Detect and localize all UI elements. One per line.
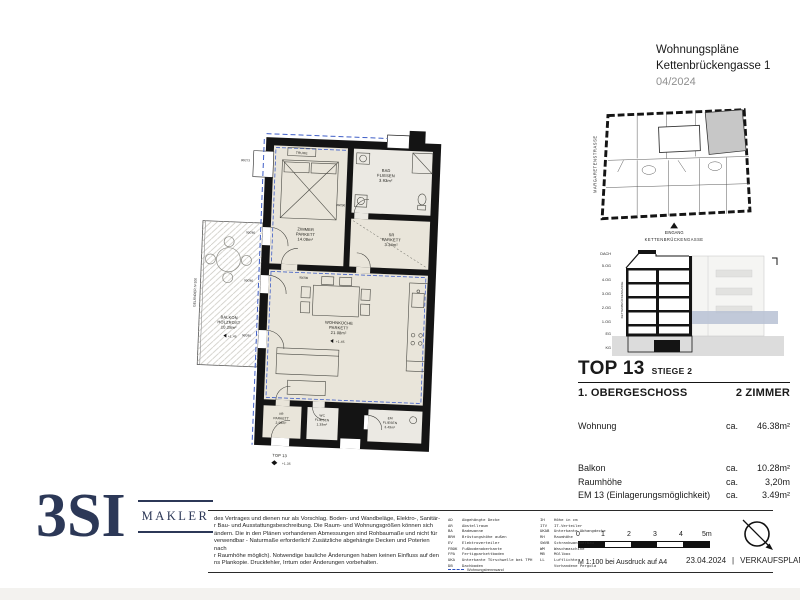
detail-row-raumhoehe: Raumhöhe ca. 3,20m: [578, 476, 790, 490]
entrance-level-value: +1.35: [282, 462, 291, 466]
floorplan-drawing: GELÄNDER h=100 BALKON HOLZROST 10.28m² +…: [185, 118, 475, 478]
section-floor-labels: DACH 5.OG 4.OG 3.OG 2.OG 1.OG EG KG: [600, 252, 611, 350]
page-edge-shadow: [0, 588, 800, 600]
room-zimmer-area: 14.08m²: [297, 236, 313, 242]
doc-title: Wohnungspläne: [656, 42, 770, 58]
entrance-top-label: TOP 13: [272, 453, 287, 459]
floor-label: 1.OG: [602, 320, 611, 324]
plan-page: Wohnungspläne Kettenbrückengasse 1 04/20…: [0, 0, 800, 600]
top-window-notch: [387, 135, 410, 149]
truhe-label: TRUHE: [296, 151, 308, 155]
entrance-marker: TOP 13 +1.35: [271, 453, 291, 466]
floor-label: DACH: [600, 252, 611, 256]
detail-ca: ca.: [726, 476, 752, 490]
balcony-level-value: +1.45: [228, 334, 237, 338]
logo-makler-text: MAKLER: [138, 500, 214, 533]
doc-address: Kettenbrückengasse 1: [656, 58, 770, 74]
detail-ca: ca.: [726, 462, 752, 476]
detail-label: EM 13 (Einlagerungsmöglichkeit): [578, 489, 726, 503]
railing-label: GELÄNDER h=100: [193, 278, 198, 307]
unit-rooms: 2 ZIMMER: [736, 387, 790, 399]
unit-stiege: STIEGE 2: [652, 366, 693, 376]
scale-tick: 2: [627, 531, 631, 538]
unit-number: TOP 13: [578, 358, 645, 380]
highlight-1og-band: [692, 311, 778, 324]
dim-label: 80/200: [336, 203, 345, 207]
dim-label: 90/200: [299, 276, 308, 280]
highlighted-unit: [705, 110, 746, 155]
scale-tick: 3: [653, 531, 657, 538]
scale-tick: 4: [679, 531, 683, 538]
dim-label: 90/260: [244, 278, 253, 282]
entrance-level-diamond: [271, 460, 277, 465]
ground: [612, 336, 784, 356]
footer-rule-bottom: [208, 572, 773, 573]
legend-column-1: AD Abgehängte Decke AR Abstellraum BA Ba…: [448, 517, 532, 568]
wohnung-row: Wohnung ca. 46.38m²: [578, 421, 790, 431]
wk-level-value: +1.45: [336, 340, 345, 344]
siteplan-street-left: MARGARETENSTRASSE: [592, 135, 597, 193]
floor-label: 4.OG: [602, 278, 611, 282]
dim-label: 80/273: [241, 158, 250, 162]
north-arrow-icon: [738, 516, 780, 558]
floor-label: EG: [606, 332, 612, 336]
plan-date: 23.04.2024: [686, 556, 726, 565]
detail-value: 3,20m: [752, 476, 790, 490]
room-bad-area: 3.93m²: [379, 178, 393, 184]
dim-label: 90/260: [242, 333, 251, 337]
footer-rule-top: [208, 510, 773, 511]
room-em-area: 3.49m²: [384, 425, 395, 429]
detail-label: Balkon: [578, 462, 726, 476]
detail-label: Raumhöhe: [578, 476, 726, 490]
siteplan-drawing: MARGARETENSTRASSE EINGANG KETTENBRÜCKENG…: [590, 100, 766, 242]
floor-label: 3.OG: [602, 292, 611, 296]
wohnung-label: Wohnung: [578, 421, 726, 431]
section-street-label: KETTENBRÜCKENGASSE: [620, 282, 624, 319]
detail-value: 3.49m²: [752, 489, 790, 503]
separator: |: [732, 556, 734, 565]
room-vr-area: 2.56m²: [275, 421, 286, 425]
room-balkon-area: 10.28m²: [221, 324, 237, 330]
blue-dash-symbol: [448, 569, 464, 570]
floor-label: 2.OG: [602, 306, 611, 310]
company-logo: 3SI MAKLER: [36, 488, 213, 545]
disclaimer-text: des Vertrages und dienen nur als Vorschl…: [214, 516, 440, 568]
siteplan-entrance-label: EINGANG: [665, 230, 684, 235]
siteplan-street-bottom: KETTENBRÜCKENGASSE: [645, 237, 704, 242]
room-wk-area: 21.08m²: [331, 330, 347, 336]
detail-row-balkon: Balkon ca. 10.28m²: [578, 462, 790, 476]
scale-tick: 5m: [702, 531, 712, 538]
unit-floor: 1. OBERGESCHOSS: [578, 387, 687, 399]
unit-floor-row: 1. OBERGESCHOSS 2 ZIMMER: [578, 387, 790, 399]
room-wc-area: 1.39m²: [316, 422, 327, 426]
document-header: Wohnungspläne Kettenbrückengasse 1 04/20…: [656, 42, 770, 90]
floor-label: KG: [606, 346, 612, 350]
doc-date: 04/2024: [656, 74, 770, 90]
entrance-triangle-icon: [670, 223, 678, 229]
detail-value: 10.28m²: [752, 462, 790, 476]
unit-info: TOP 13 STIEGE 2 1. OBERGESCHOSS 2 ZIMMER…: [578, 358, 790, 431]
legend-column-2: IH Höhe in cm ITV IT-Verteiler UKAB Unte…: [540, 517, 606, 568]
unit-details: Balkon ca. 10.28m² Raumhöhe ca. 3,20m EM…: [578, 462, 790, 503]
wohnung-ca: ca.: [726, 421, 752, 431]
plan-rotated-group: GELÄNDER h=100 BALKON HOLZROST 10.28m² +…: [186, 122, 441, 471]
wohnung-area: 46.38m²: [752, 421, 790, 431]
dim-label: 90/260: [246, 230, 255, 234]
unit-title-row: TOP 13 STIEGE 2: [578, 358, 790, 383]
wall-stub: [409, 131, 426, 145]
siteplan-building: MARGARETENSTRASSE EINGANG KETTENBRÜCKENG…: [592, 110, 750, 242]
balcony: GELÄNDER h=100 BALKON HOLZROST 10.28m² +…: [190, 220, 263, 367]
detail-row-em13: EM 13 (Einlagerungsmöglichkeit) ca. 3.49…: [578, 489, 790, 503]
section-drawing: DACH 5.OG 4.OG 3.OG 2.OG 1.OG EG KG KETT…: [596, 244, 786, 358]
facade-windows: [716, 270, 752, 313]
logo-3si-text: 3SI: [36, 488, 126, 545]
detail-ca: ca.: [726, 489, 752, 503]
room-sr-area: 3.34m²: [384, 242, 398, 248]
floor-label: 5.OG: [602, 264, 611, 268]
